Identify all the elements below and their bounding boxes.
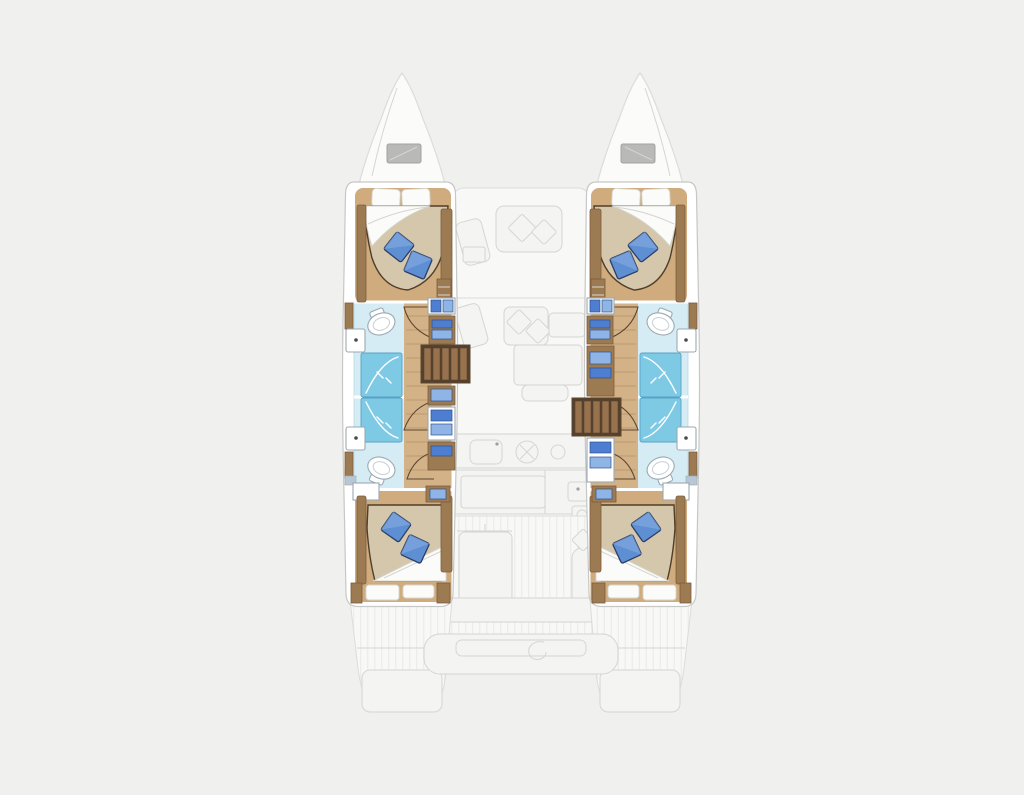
saloon-table — [514, 345, 582, 385]
davit-console — [424, 634, 618, 674]
galley — [455, 434, 592, 525]
appliance — [568, 482, 588, 501]
cockpit-table — [459, 532, 512, 608]
aft-bench — [436, 598, 614, 622]
saloon-bench — [549, 313, 585, 337]
companionway-steps — [572, 398, 621, 436]
forward-cockpit — [452, 188, 590, 302]
galley-counter — [455, 434, 587, 468]
galley-lower-counter — [455, 470, 587, 514]
saloon — [452, 298, 592, 525]
floorplan-canvas — [0, 0, 1024, 795]
side-table — [463, 247, 485, 262]
companionway-steps — [421, 345, 470, 383]
floorplan-svg — [0, 0, 1024, 795]
saloon-seat — [522, 385, 568, 401]
